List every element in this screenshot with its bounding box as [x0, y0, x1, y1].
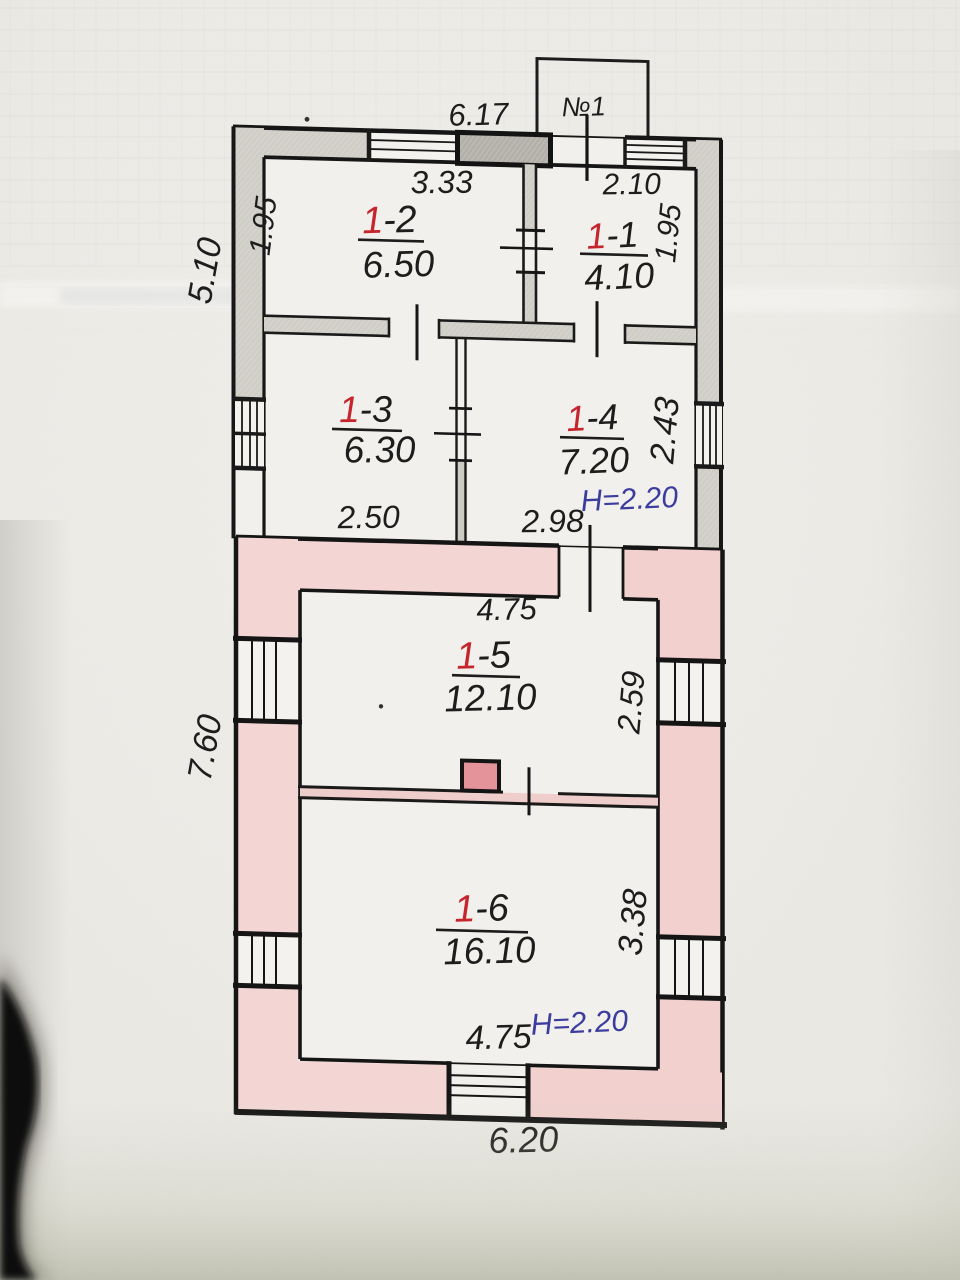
svg-text:H=2.20: H=2.20: [530, 1005, 630, 1042]
svg-text:2.59: 2.59: [610, 669, 651, 736]
svg-text:16.10: 16.10: [442, 929, 537, 972]
svg-text:4.10: 4.10: [583, 254, 656, 298]
svg-text:6.30: 6.30: [343, 429, 417, 471]
svg-text:6.17: 6.17: [447, 96, 511, 133]
svg-text:2.50: 2.50: [336, 499, 401, 536]
svg-text:2.98: 2.98: [520, 503, 585, 540]
svg-text:1-5: 1-5: [455, 634, 513, 677]
svg-text:3.38: 3.38: [611, 887, 655, 957]
svg-text:1-4: 1-4: [565, 396, 620, 439]
svg-text:1-2: 1-2: [361, 199, 418, 242]
svg-text:12.10: 12.10: [443, 676, 538, 719]
svg-text:1-3: 1-3: [338, 389, 393, 430]
svg-text:3.33: 3.33: [410, 164, 474, 200]
svg-text:H=2.20: H=2.20: [580, 481, 680, 518]
svg-text:4.75: 4.75: [475, 591, 538, 628]
svg-text:4.75: 4.75: [464, 1018, 532, 1058]
svg-text:6.50: 6.50: [361, 243, 435, 286]
svg-text:7.20: 7.20: [558, 439, 631, 483]
svg-text:№1: №1: [561, 91, 607, 122]
svg-text:2.43: 2.43: [643, 395, 687, 466]
svg-text:1-6: 1-6: [453, 887, 511, 930]
svg-text:2.10: 2.10: [601, 168, 662, 201]
svg-text:1.95: 1.95: [649, 202, 688, 265]
svg-text:1-1: 1-1: [585, 213, 640, 256]
